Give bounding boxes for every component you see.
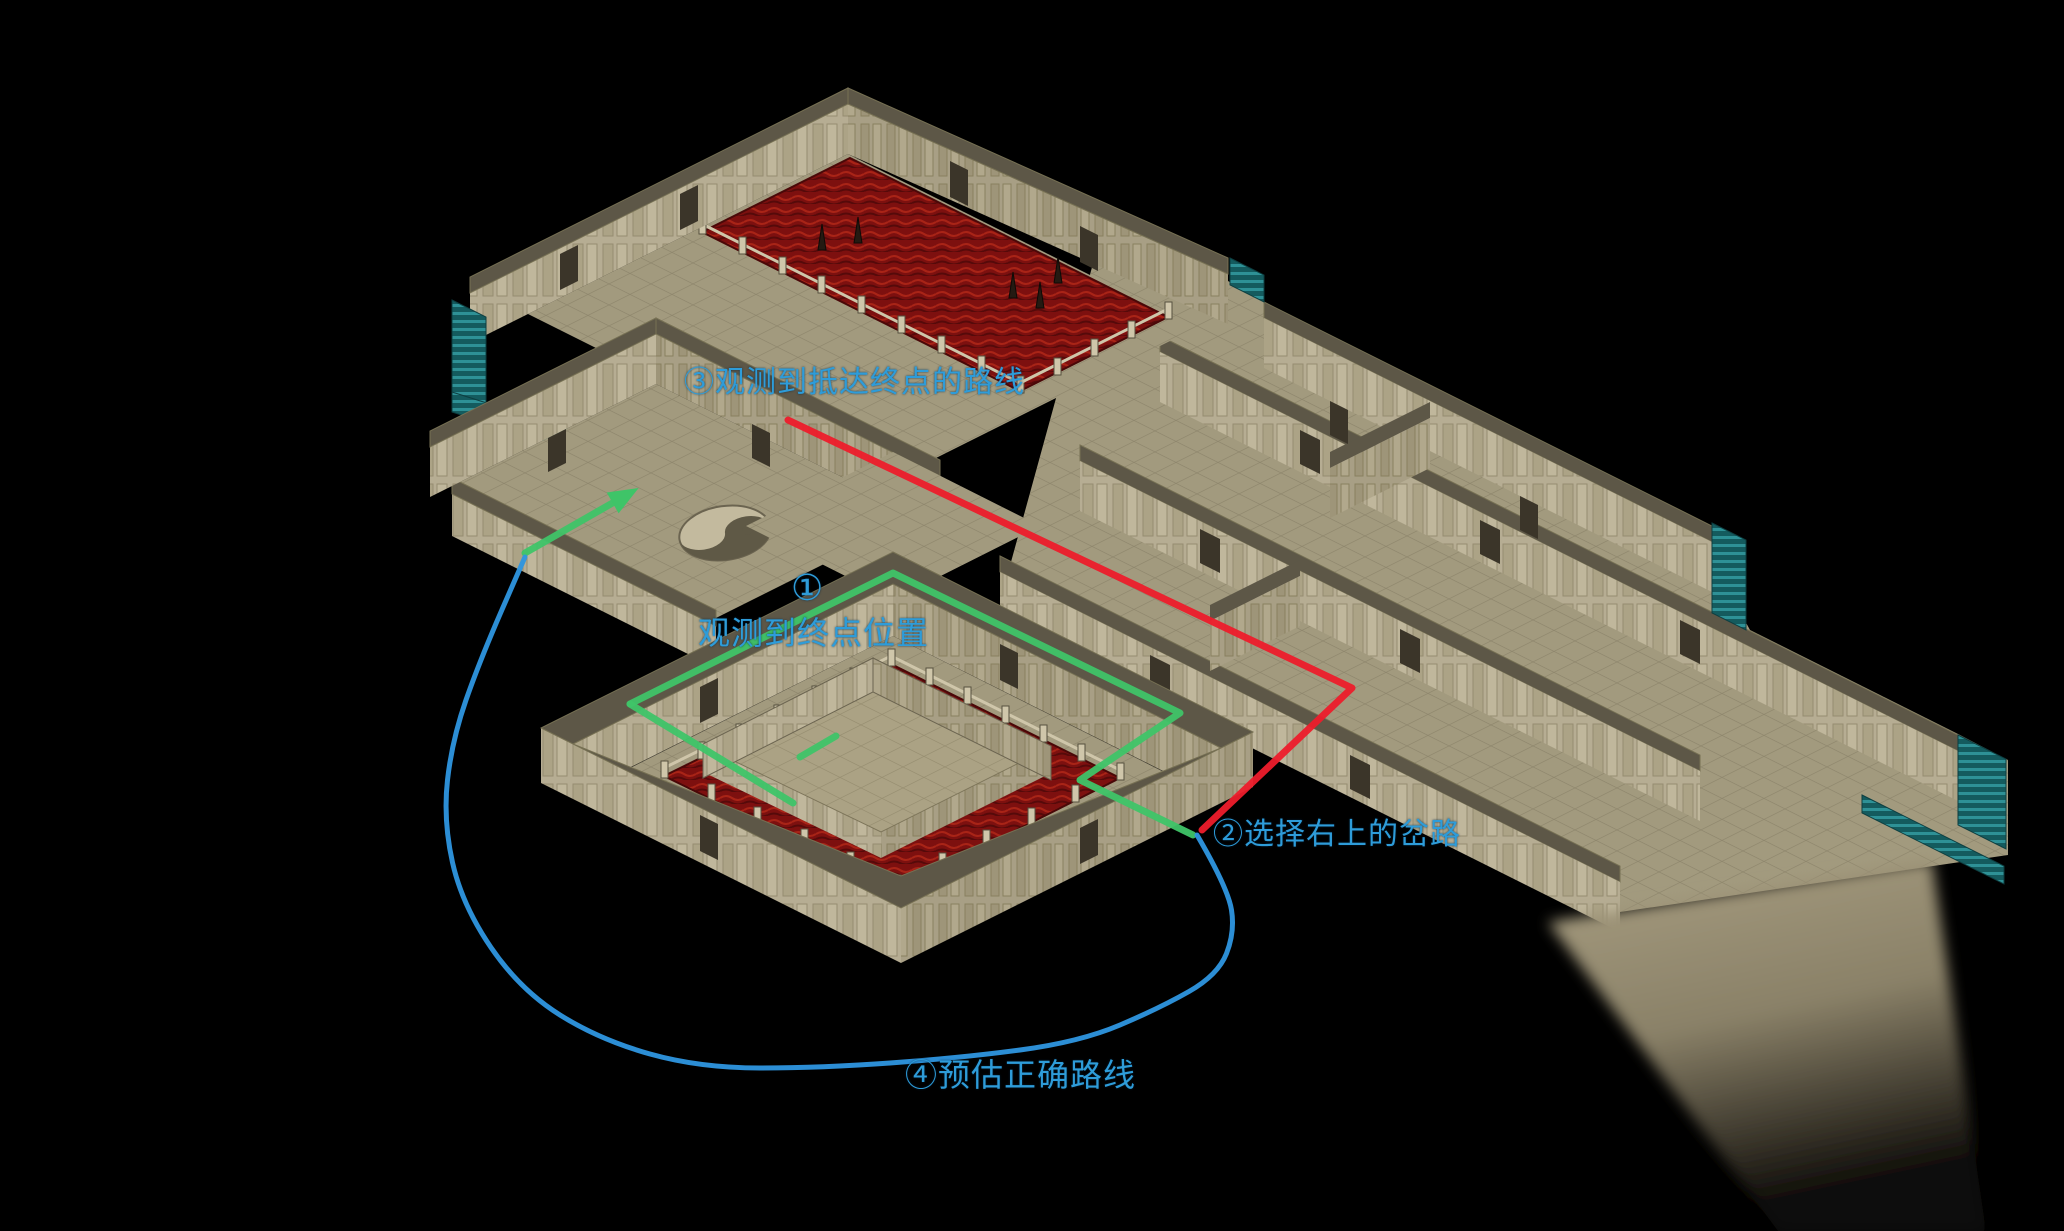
stairs-right-upper[interactable]	[1712, 523, 1746, 630]
game-screenshot: ③观测到抵达终点的路线 ① 观测到终点位置 ②选择右上的岔路 ④预估正确路线	[0, 0, 2064, 1231]
dungeon-map[interactable]	[0, 0, 2064, 1231]
